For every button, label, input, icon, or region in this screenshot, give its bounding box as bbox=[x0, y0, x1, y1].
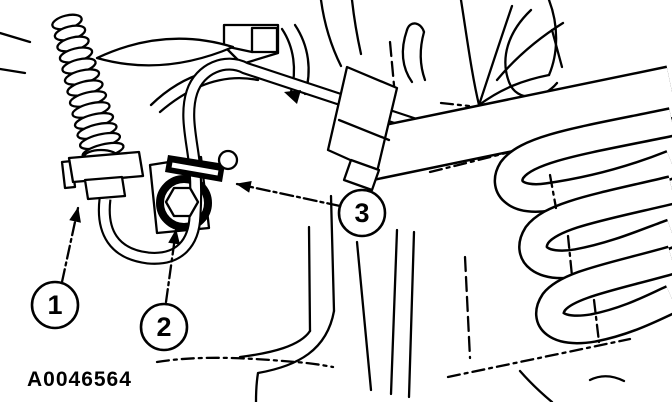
callout-3: 3 bbox=[339, 190, 385, 236]
callout-3-label: 3 bbox=[354, 198, 369, 228]
technical-diagram: 1 2 3 A0046564 bbox=[0, 0, 672, 402]
callout-2: 2 bbox=[141, 304, 187, 350]
callout-1-label: 1 bbox=[47, 290, 62, 320]
clamp-bolt bbox=[166, 188, 198, 216]
figure-code: A0046564 bbox=[27, 368, 132, 391]
callout-1: 1 bbox=[32, 282, 78, 328]
clamp-pin bbox=[219, 151, 237, 169]
callout-2-label: 2 bbox=[156, 312, 171, 342]
diagram-page: 1 2 3 A0046564 bbox=[0, 0, 672, 402]
